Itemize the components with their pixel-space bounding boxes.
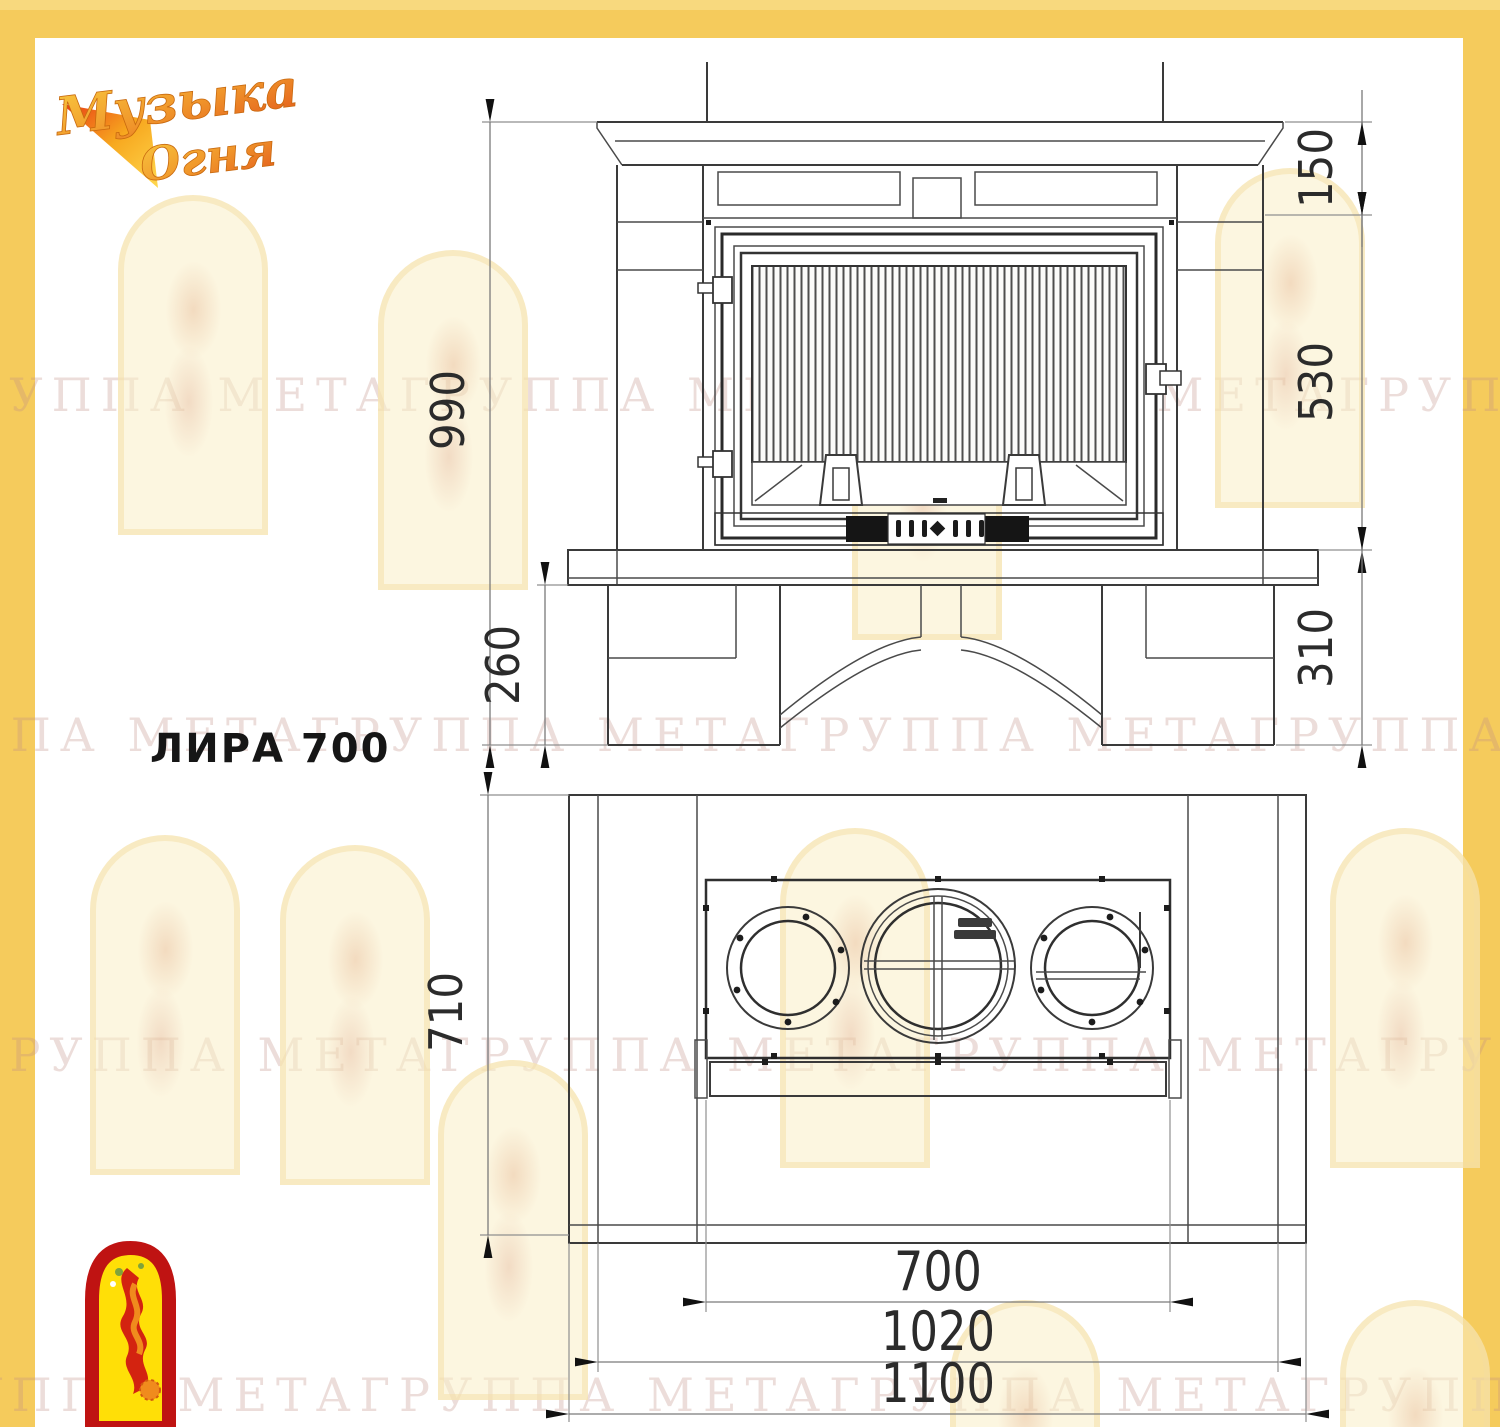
dim-label-1100: 1100 [881,1352,995,1415]
brand-logo: Музыка Огня [40,38,340,218]
base-plinth [608,585,1274,745]
mascot-dot-green [138,1263,144,1269]
page: ГРУППА МЕТАГРУППА МЕТАГРУППА МЕТАГРУППА … [0,0,1500,1427]
flue-stubs [707,62,1163,122]
dim-top-band: 150 [1265,90,1372,247]
model-title: ЛИРА 700 [150,726,390,772]
plan-right-outlet [1031,907,1153,1029]
dim-label-990: 990 [421,370,475,450]
firebird-mascot-logo [83,1238,178,1427]
left-pilaster [617,165,703,550]
dim-label-260: 260 [476,625,530,705]
dim-depth: 710 [419,795,569,1235]
door-latch [1146,364,1181,394]
plan-firebox-unit [695,876,1181,1098]
mantel-shelf [597,122,1283,165]
plan-outer-outline [569,795,1306,1243]
dim-label-700: 700 [894,1240,982,1303]
dim-label-530: 530 [1289,342,1343,422]
dim-firebox-height: 530 [1289,215,1372,550]
plan-left-outlet [727,907,849,1029]
right-pilaster [1177,165,1263,550]
firebox-door [698,227,1181,545]
mascot-dot-white [110,1281,116,1287]
door-grill [752,266,1126,462]
front-elevation: 990 260 150 530 [421,62,1372,745]
dim-label-150: 150 [1289,128,1343,208]
hearth-shelf [568,550,1318,585]
mascot-dot-green [115,1268,123,1276]
firebox-casing [706,220,1174,225]
dim-label-310: 310 [1289,608,1343,688]
plan-view: 710 700 1020 1100 [419,795,1306,1422]
plan-flue-outlet [861,889,1015,1043]
frieze [703,172,1177,218]
dim-base-height: 310 [1276,550,1372,745]
mascot-ball [140,1380,160,1400]
door-sill [752,455,1126,505]
dim-label-710: 710 [419,972,473,1052]
dim-firebox-width: 700 [706,1100,1170,1312]
